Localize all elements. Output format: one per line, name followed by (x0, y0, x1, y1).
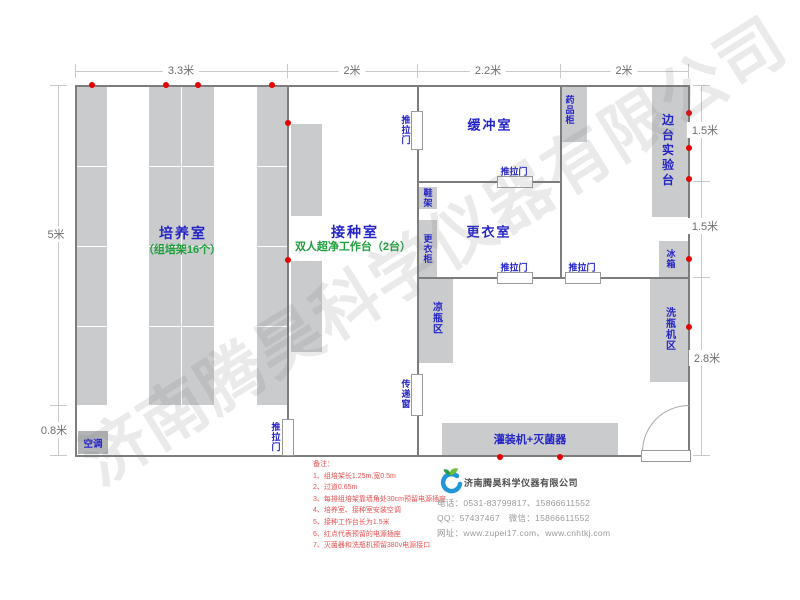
dim-top-3: 2.2米 (470, 62, 506, 78)
sliding-door-inoculation-buffer (411, 111, 423, 150)
label-sliding-door-5: 推拉门 (568, 261, 595, 274)
dim-right-1: 1.5米 (687, 122, 723, 138)
dim-tick (688, 64, 689, 78)
label-sliding-door-2: 推拉门 (270, 422, 283, 452)
sliding-door-sidebench-bottomroom (565, 272, 601, 284)
dim-right-3: 2.8米 (689, 350, 725, 366)
room-label-changing: 更衣室 (466, 222, 511, 241)
power-socket-dot (285, 120, 291, 126)
power-socket-dot (163, 82, 169, 88)
wall-culture-inoculation (287, 85, 289, 457)
dim-tick (560, 64, 561, 78)
dim-top-4: 2米 (610, 62, 637, 78)
dim-left-2: 0.8米 (36, 422, 72, 438)
power-socket-dot (285, 257, 291, 263)
power-socket-dot (686, 256, 692, 262)
company-logo-icon (437, 467, 463, 495)
power-socket-dot (557, 454, 563, 460)
label-sliding-door-3: 推拉门 (500, 165, 527, 178)
power-socket-dot (195, 82, 201, 88)
note-line: 7、灭菌器和洗瓶机预留380v电源接口 (313, 540, 463, 552)
company-phone: 电话：0531-83799817、15866611552 (437, 497, 590, 509)
wall-changing-bottomroom (417, 277, 690, 279)
sliding-door-culture-inoculation (282, 419, 294, 456)
wall-bottom (75, 455, 690, 457)
clean-bench-2 (291, 261, 322, 352)
label-sliding-door-1: 推拉门 (400, 115, 413, 145)
right-dimension-line (701, 85, 702, 455)
label-transfer-window: 传递窗 (400, 379, 413, 409)
transfer-window (411, 374, 423, 416)
label-sliding-door-4: 推拉门 (500, 261, 527, 274)
dim-tick (50, 405, 67, 406)
room-label-culture: 培养室 (159, 223, 207, 243)
dim-right-2: 1.5米 (687, 218, 723, 234)
label-filler-sterilizer: 灌装机+灭菌器 (494, 431, 566, 447)
power-socket-dot (89, 82, 95, 88)
room-label-side-bench: 边台实验台 (660, 114, 677, 189)
label-medicine-cabinet: 药品柜 (564, 95, 577, 125)
company-name: 济南腾昊科学仪器有限公司 (464, 476, 578, 489)
room-sublabel-inoculation: 双人超净工作台（2台） (295, 238, 411, 254)
entrance-door-leaf (641, 450, 691, 462)
label-shoe-rack: 鞋架 (422, 188, 435, 208)
company-website: 网址：www.zupei17.com、www.cnhtkj.com (437, 527, 610, 539)
wall-left (75, 85, 77, 457)
culture-rack-column-3 (257, 87, 287, 405)
sliding-door-buffer-changing (497, 176, 533, 188)
power-socket-dot (686, 110, 692, 116)
label-fridge: 冰箱 (665, 249, 678, 269)
label-wardrobe: 更衣柜 (422, 234, 435, 264)
dim-tick (693, 277, 710, 278)
power-socket-dot (269, 82, 275, 88)
entrance-door-swing-arc (642, 405, 689, 452)
dim-tick (417, 64, 418, 78)
room-sublabel-culture: （组培架16个） (143, 241, 221, 257)
dim-tick (50, 85, 67, 86)
dim-top-1: 3.3米 (163, 62, 199, 78)
left-dimension-line (58, 85, 59, 455)
dim-tick (693, 85, 710, 86)
floor-plan-canvas: 济南腾昊科学仪器有限公司 3.3米 2米 2.2米 2米 5米 0.8米 1.5… (0, 0, 800, 600)
dim-tick (693, 455, 710, 456)
dim-left-1: 5米 (42, 226, 69, 242)
wall-right (688, 85, 690, 457)
company-qq-wechat: QQ：57437467 微信：15866611552 (437, 512, 590, 524)
clean-bench-1 (291, 124, 322, 216)
power-socket-dot (497, 454, 503, 460)
dim-tick (693, 181, 710, 182)
power-socket-dot (686, 324, 692, 330)
culture-rack-column-1 (77, 87, 107, 405)
dim-tick (287, 64, 288, 78)
wall-buffer-changing (417, 181, 562, 183)
dim-tick (50, 455, 67, 456)
room-label-buffer: 缓冲室 (467, 115, 512, 134)
label-cool-bottle-area: 凉瓶区 (429, 302, 444, 335)
label-air-conditioner: 空调 (83, 436, 102, 450)
power-socket-dot (686, 176, 692, 182)
power-socket-dot (686, 145, 692, 151)
dim-top-2: 2米 (338, 62, 365, 78)
dim-tick (75, 64, 76, 78)
sliding-door-changing-bottomroom (497, 272, 533, 284)
label-washer-area: 洗瓶机区 (662, 307, 677, 351)
